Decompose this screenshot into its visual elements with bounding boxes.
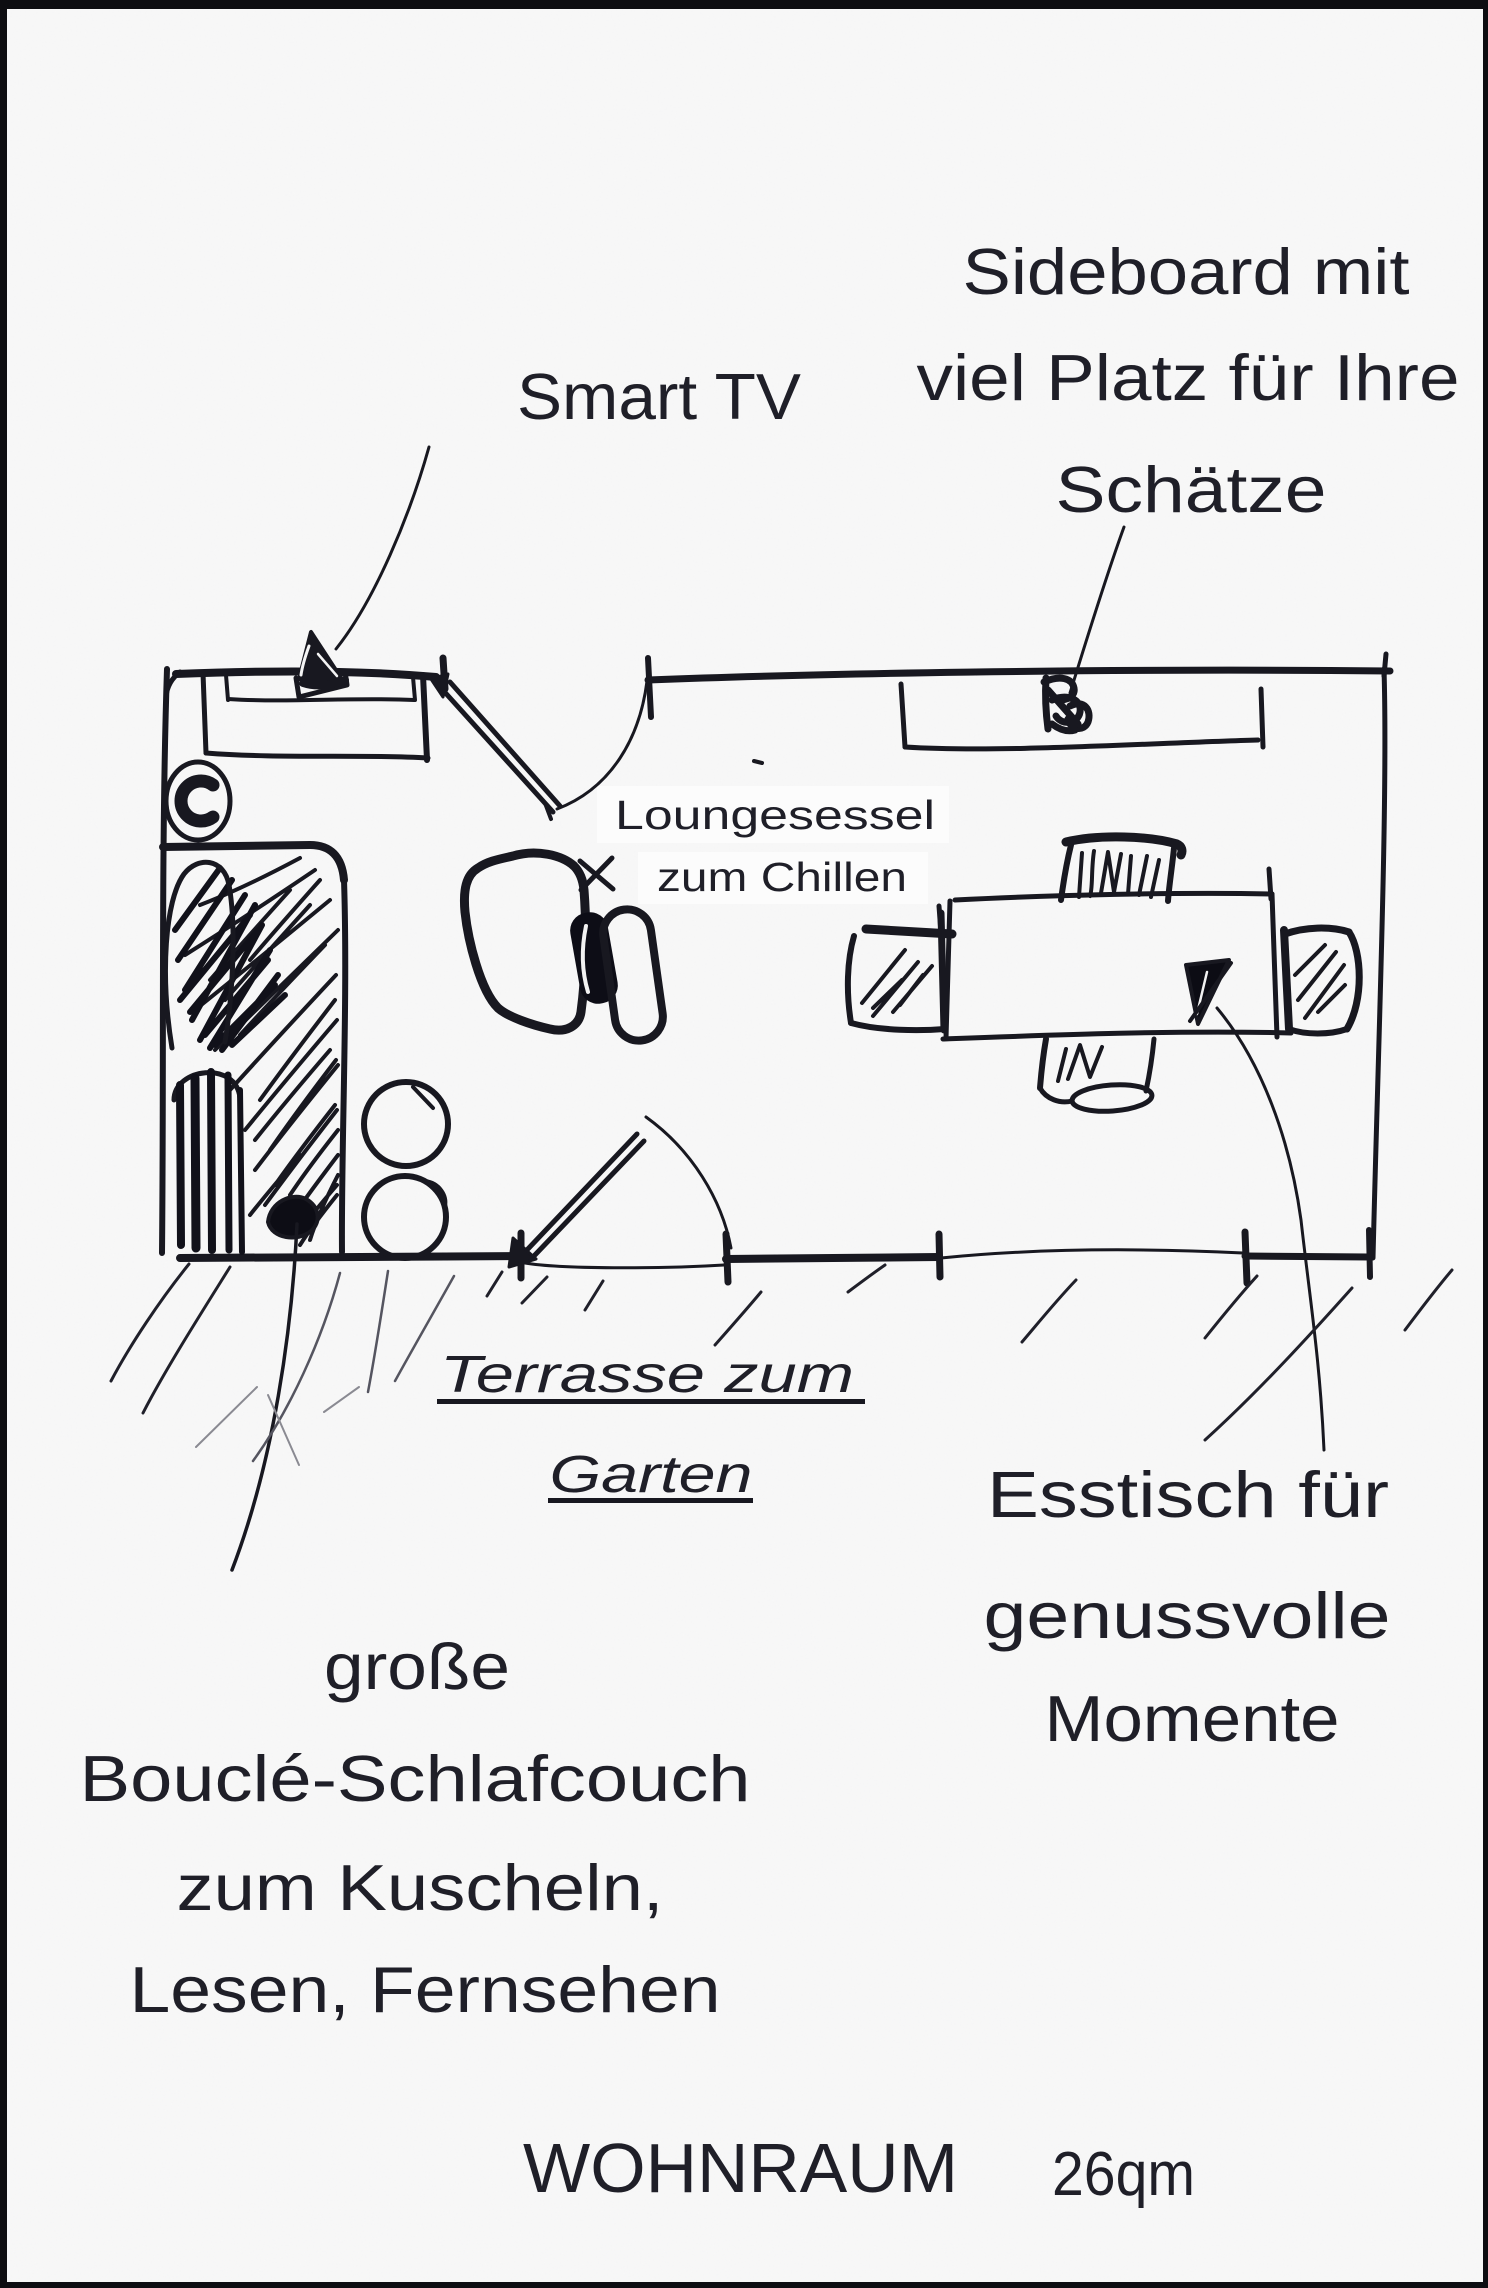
svg-text:viel Platz für Ihre: viel Platz für Ihre (917, 341, 1460, 414)
svg-text:Garten: Garten (550, 1446, 753, 1504)
svg-text:26qm: 26qm (1052, 2140, 1195, 2209)
svg-text:Lesen, Fernsehen: Lesen, Fernsehen (130, 1953, 721, 2026)
svg-text:Schätze: Schätze (1056, 453, 1327, 526)
svg-text:zum Kuscheln,: zum Kuscheln, (177, 1851, 664, 1924)
svg-text:Loungesessel: Loungesessel (615, 792, 935, 838)
svg-text:Sideboard mit: Sideboard mit (963, 235, 1410, 308)
svg-text:Smart TV: Smart TV (517, 360, 802, 433)
svg-text:Esstisch für: Esstisch für (987, 1458, 1389, 1531)
svg-text:große: große (324, 1630, 510, 1703)
svg-text:zum Chillen: zum Chillen (657, 854, 907, 900)
svg-text:Terrasse zum: Terrasse zum (440, 1346, 854, 1404)
svg-text:Bouclé-Schlafcouch: Bouclé-Schlafcouch (80, 1742, 751, 1815)
svg-text:WOHNRAUM: WOHNRAUM (523, 2129, 958, 2207)
svg-text:genussvolle: genussvolle (984, 1579, 1391, 1652)
svg-text:Momente: Momente (1045, 1682, 1340, 1755)
